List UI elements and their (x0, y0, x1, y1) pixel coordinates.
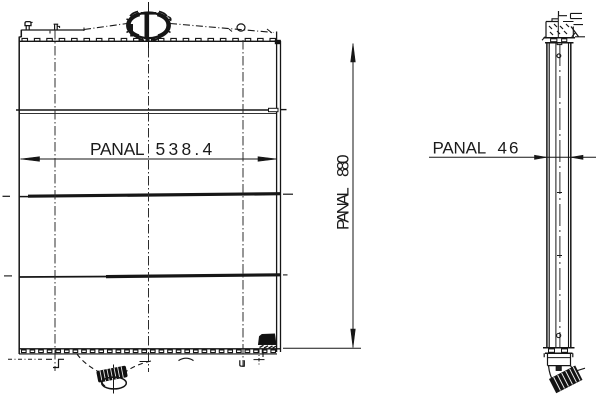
svg-text:PANAL: PANAL (90, 139, 145, 159)
svg-text:46: 46 (498, 138, 521, 157)
svg-text:PANAL: PANAL (334, 187, 353, 230)
svg-text:880: 880 (334, 155, 353, 177)
svg-text:PANAL: PANAL (433, 138, 487, 157)
svg-text:538.4: 538.4 (156, 139, 216, 159)
